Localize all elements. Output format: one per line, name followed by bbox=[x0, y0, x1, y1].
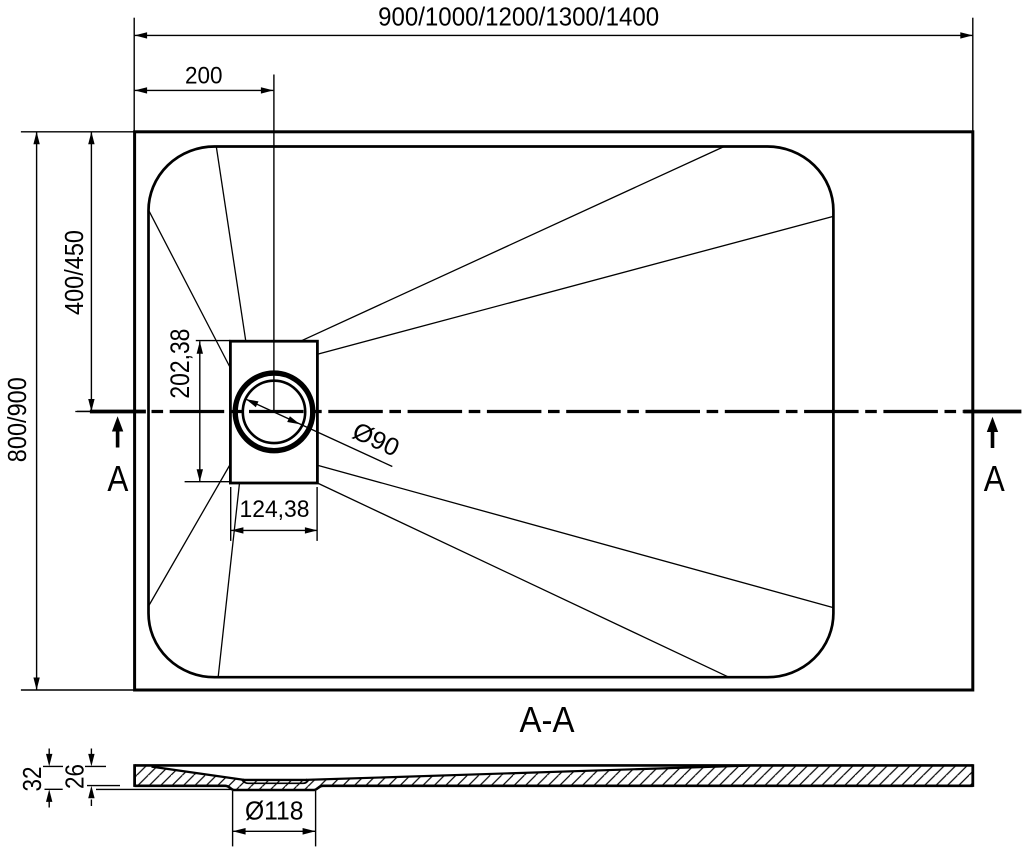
svg-text:Ø90: Ø90 bbox=[348, 417, 403, 462]
svg-text:202,38: 202,38 bbox=[165, 329, 195, 399]
svg-text:32: 32 bbox=[19, 767, 47, 792]
svg-text:Ø118: Ø118 bbox=[245, 798, 304, 826]
svg-text:900/1000/1200/1300/1400: 900/1000/1200/1300/1400 bbox=[378, 4, 659, 32]
svg-text:124,38: 124,38 bbox=[240, 496, 310, 523]
svg-text:A-A: A-A bbox=[520, 699, 575, 740]
svg-text:26: 26 bbox=[61, 764, 89, 789]
svg-text:A: A bbox=[984, 458, 1006, 499]
svg-text:A: A bbox=[107, 458, 129, 499]
svg-text:200: 200 bbox=[185, 62, 223, 89]
svg-text:400/450: 400/450 bbox=[59, 230, 89, 315]
svg-text:800/900: 800/900 bbox=[2, 377, 32, 462]
